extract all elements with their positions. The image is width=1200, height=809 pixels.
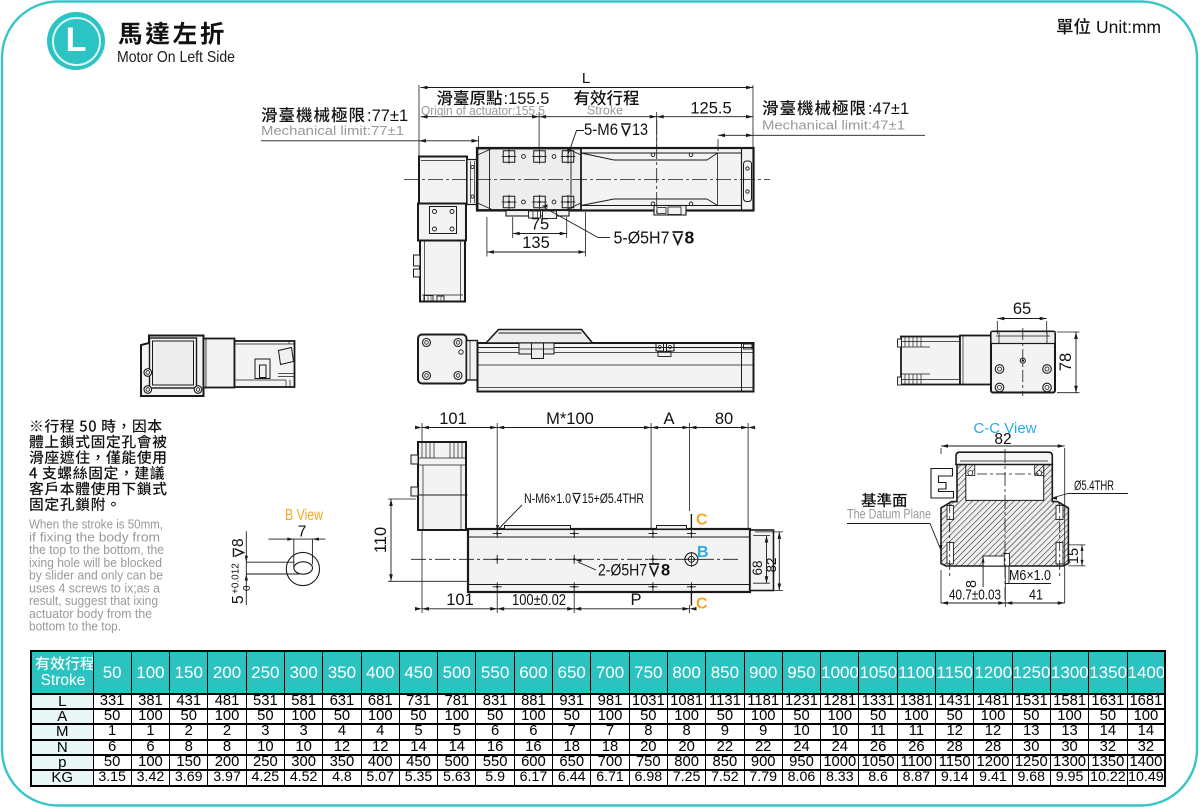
svg-text:Stroke: Stroke: [587, 103, 623, 118]
svg-text:bottom to the top.: bottom to the top.: [29, 619, 121, 634]
svg-text:M6×1.0: M6×1.0: [1009, 568, 1051, 584]
svg-text:Origin of actuator:155.5: Origin of actuator:155.5: [421, 103, 545, 118]
svg-text:8: 8: [661, 562, 670, 580]
svg-text:Stroke: Stroke: [41, 672, 86, 689]
svg-text:5-Ø5H7: 5-Ø5H7: [614, 228, 670, 248]
svg-text:80: 80: [715, 410, 733, 428]
svg-text:78: 78: [1057, 353, 1075, 371]
svg-text:Ø5.4THR: Ø5.4THR: [1074, 477, 1114, 493]
svg-text:A: A: [663, 410, 674, 428]
svg-text:L: L: [582, 70, 590, 87]
svg-text:Mechanical limit:47±1: Mechanical limit:47±1: [762, 118, 905, 133]
svg-text:13: 13: [632, 121, 648, 139]
svg-text:C: C: [696, 512, 708, 529]
svg-text:B: B: [697, 544, 709, 561]
svg-text:C: C: [696, 596, 708, 613]
svg-text:41: 41: [1029, 587, 1043, 604]
svg-text:Mechanical limit:77±1: Mechanical limit:77±1: [261, 123, 404, 138]
svg-text:82: 82: [764, 557, 779, 572]
svg-text:P: P: [630, 591, 641, 609]
svg-text:82: 82: [994, 431, 1011, 448]
svg-text:5-M6: 5-M6: [584, 121, 618, 139]
svg-text:65: 65: [1013, 300, 1031, 318]
svg-text:2-Ø5H7: 2-Ø5H7: [598, 562, 647, 580]
svg-text:The Datum Plane: The Datum Plane: [847, 507, 931, 522]
svg-text:15: 15: [1066, 548, 1082, 564]
svg-text:100±0.02: 100±0.02: [512, 592, 566, 609]
svg-text:N-M6×1.0: N-M6×1.0: [524, 491, 571, 506]
svg-text:135: 135: [522, 234, 550, 252]
svg-text:40.7±0.03: 40.7±0.03: [949, 587, 1001, 604]
svg-text:125.5: 125.5: [690, 100, 731, 118]
svg-text:15+Ø5.4THR: 15+Ø5.4THR: [582, 491, 644, 506]
svg-text:M*100: M*100: [546, 410, 594, 428]
svg-text:75: 75: [531, 216, 549, 234]
svg-text:8: 8: [685, 228, 695, 248]
svg-text::47±1: :47±1: [868, 100, 909, 118]
svg-text:68: 68: [750, 560, 765, 575]
